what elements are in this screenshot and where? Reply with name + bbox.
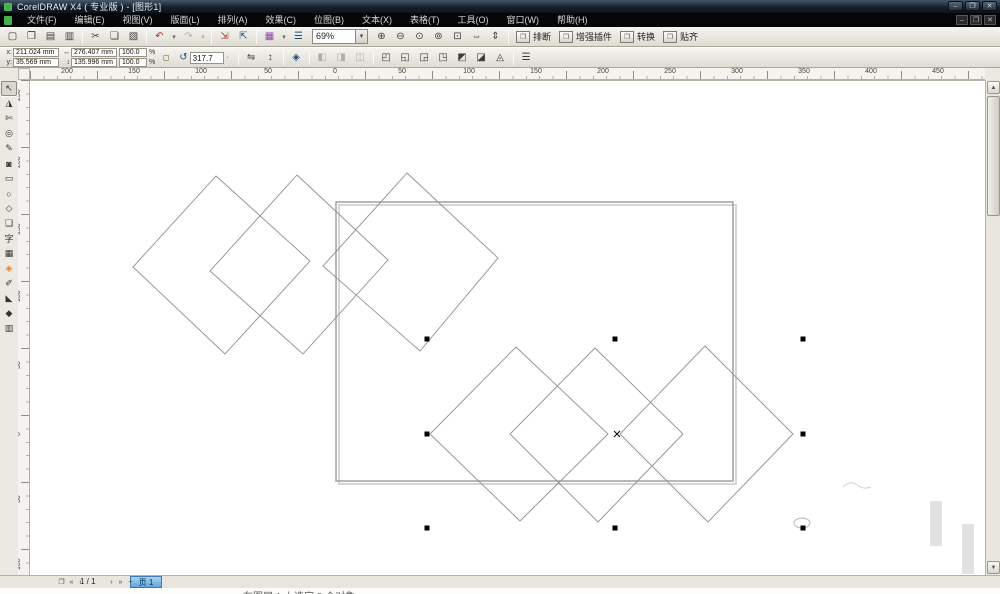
page-shadow[interactable]: [339, 205, 736, 484]
lock-ratio-icon[interactable]: ◻: [160, 51, 172, 65]
page-rectangle[interactable]: [336, 202, 733, 481]
selection-handle-4[interactable]: [425, 432, 430, 437]
separator: [283, 51, 284, 65]
rotation-spinner[interactable]: ◦: [224, 52, 232, 64]
window-control-1[interactable]: ❐: [965, 1, 980, 11]
copy-icon[interactable]: ❏: [106, 29, 123, 45]
selection-handle-6[interactable]: [425, 526, 430, 531]
diamond-shape-3[interactable]: [323, 173, 498, 351]
menu-item-10[interactable]: 窗口(W): [498, 13, 549, 27]
zoom-out-icon[interactable]: ⊖: [392, 29, 409, 45]
window-title: CorelDRAW X4 ( 专业版 ) - [图形1]: [17, 0, 161, 13]
status-text: 在图层 1 上选定 3 个对象: [243, 588, 355, 594]
menu-items: 文件(F)编辑(E)视图(V)版面(L)排列(A)效果(C)位图(B)文本(X)…: [18, 13, 597, 27]
group-icon[interactable]: ◱: [397, 50, 414, 66]
add-page-icon[interactable]: +: [125, 577, 136, 588]
pick-tool[interactable]: ↖: [1, 81, 17, 96]
percent-label: %: [149, 49, 155, 56]
launcher-dropdown-icon[interactable]: ▾: [280, 29, 288, 45]
freehand-tool[interactable]: ✎: [1, 141, 17, 156]
selection-handle-7[interactable]: [613, 526, 618, 531]
paste-icon[interactable]: ▧: [125, 29, 142, 45]
redo-dropdown-icon[interactable]: ▾: [199, 29, 207, 45]
doc-window-control-1[interactable]: ❐: [970, 15, 982, 25]
h-ruler-label: 350: [798, 68, 810, 75]
document-window-controls: –❐✕: [956, 15, 996, 25]
undo-icon[interactable]: ↶: [151, 29, 168, 45]
fill-tool[interactable]: ◆: [1, 306, 17, 321]
h-ruler-label: 50: [264, 68, 272, 75]
percent-label: %: [149, 59, 155, 66]
menu-item-9[interactable]: 工具(O): [449, 13, 498, 27]
snap-button-label: 贴齐: [680, 30, 698, 43]
convert-curves-icon[interactable]: ◬: [492, 50, 509, 66]
interactive-blend-tool[interactable]: ◈: [1, 261, 17, 276]
ungroup-icon[interactable]: ◲: [416, 50, 433, 66]
menu-item-5[interactable]: 效果(C): [257, 13, 306, 27]
diamond-shape-6[interactable]: [620, 346, 793, 522]
zoom-all-objects-icon[interactable]: ⊚: [430, 29, 447, 45]
app-launcher-icon[interactable]: ▦: [261, 29, 278, 45]
app-logo-icon: [4, 3, 12, 11]
outline-width-icon[interactable]: ☰: [518, 50, 535, 66]
interactive-fill-tool[interactable]: ▥: [1, 321, 17, 336]
h-ruler-label: 0: [333, 68, 337, 75]
h-ruler-label: 150: [530, 68, 542, 75]
standard-toolbar: ▢❒▤▥✂❏▧↶▾↷▾⇲⇱▦▾☰ 69% ▾ ⊕⊖⊙⊚⊡⇔⇕ ❐排断❐增强插件❐…: [0, 27, 1000, 47]
window-controls: –❐✕: [948, 1, 997, 11]
weld-icon[interactable]: ◧: [314, 50, 331, 66]
artwork: [30, 81, 985, 576]
ellipse-tool[interactable]: ○: [1, 186, 17, 201]
menu-item-2[interactable]: 视图(V): [114, 13, 162, 27]
text-tool[interactable]: 字: [1, 231, 17, 246]
order-icon[interactable]: ◪: [473, 50, 490, 66]
object-height-field[interactable]: 135.996 mm: [71, 58, 117, 67]
selection-handle-3[interactable]: [801, 337, 806, 342]
zoom-selected-icon[interactable]: ⊙: [411, 29, 428, 45]
menu-item-3[interactable]: 版面(L): [162, 13, 209, 27]
doc-window-control-2[interactable]: ✕: [984, 15, 996, 25]
plugin-cut-button-icon: ❐: [516, 31, 530, 43]
mirror-vertical-icon[interactable]: ↕: [262, 50, 279, 66]
ruler-origin-corner[interactable]: [18, 68, 30, 80]
plugin-convert-button-label: 转换: [637, 30, 655, 43]
cut-icon[interactable]: ✂: [87, 29, 104, 45]
separator: [373, 51, 374, 65]
h-ruler-label: 300: [731, 68, 743, 75]
window-control-2[interactable]: ✕: [982, 1, 997, 11]
selection-center-marker[interactable]: [614, 431, 620, 437]
new-icon[interactable]: ▢: [4, 29, 21, 45]
rotation-icon: ↺: [179, 52, 187, 63]
zoom-tool[interactable]: ◎: [1, 126, 17, 141]
object-width-field[interactable]: 276.407 mm: [71, 48, 117, 57]
width-icon: ↔: [61, 49, 70, 56]
separator: [508, 30, 509, 44]
stray-curve[interactable]: [843, 483, 871, 488]
property-bar: x: 211.024 mm y: 35.569 mm ↔ 276.407 mm …: [0, 47, 1000, 68]
trim-icon[interactable]: ◨: [333, 50, 350, 66]
zoom-level-dropdown-icon[interactable]: ▾: [356, 29, 368, 44]
snap-button[interactable]: ❐贴齐: [663, 30, 698, 43]
coreldraw-window: CorelDRAW X4 ( 专业版 ) - [图形1] –❐✕ 文件(F)编辑…: [0, 0, 1000, 594]
rotation-angle-field[interactable]: 317.7: [190, 52, 224, 64]
polygon-tool[interactable]: ◇: [1, 201, 17, 216]
h-ruler-label: 250: [664, 68, 676, 75]
plugin-enhance-button[interactable]: ❐增强插件: [559, 30, 612, 43]
welcome-screen-icon[interactable]: ☰: [290, 29, 307, 45]
selection-handle-5[interactable]: [801, 432, 806, 437]
selection-handle-1[interactable]: [425, 337, 430, 342]
zoom-width-icon[interactable]: ⇔: [468, 29, 485, 45]
plugin-cut-button[interactable]: ❐排断: [516, 30, 551, 43]
combine-icon[interactable]: ◰: [378, 50, 395, 66]
y-position-field[interactable]: 35.569 mm: [13, 58, 59, 67]
x-position-field[interactable]: 211.024 mm: [13, 48, 59, 57]
drawing-canvas[interactable]: [30, 80, 985, 575]
separator: [82, 30, 83, 44]
h-ruler-label: 200: [61, 68, 73, 75]
gray-bar-artifact-2[interactable]: [962, 524, 974, 574]
eyedropper-tool[interactable]: ✐: [1, 276, 17, 291]
status-bar: 在图层 1 上选定 3 个对象: [0, 588, 1000, 594]
selection-handle-2[interactable]: [613, 337, 618, 342]
outline-pen-tool[interactable]: ◣: [1, 291, 17, 306]
zoom-height-icon[interactable]: ⇕: [487, 29, 504, 45]
plugin-convert-button[interactable]: ❐转换: [620, 30, 655, 43]
doc-window-control-0[interactable]: –: [956, 15, 968, 25]
save-icon[interactable]: ▤: [42, 29, 59, 45]
plugin-cut-button-label: 排断: [533, 30, 551, 43]
import-icon[interactable]: ⇲: [216, 29, 233, 45]
zoom-page-icon[interactable]: ⊡: [449, 29, 466, 45]
apply-transform-icon[interactable]: ◈: [288, 50, 305, 66]
y-label: y:: [3, 59, 12, 66]
open-icon[interactable]: ❒: [23, 29, 40, 45]
horizontal-ruler[interactable]: 20015010050050100150200250300350400450: [30, 68, 985, 80]
mirror-horizontal-icon[interactable]: ⇋: [243, 50, 260, 66]
redo-icon[interactable]: ↷: [180, 29, 197, 45]
diamond-shape-5[interactable]: [510, 348, 683, 522]
toolbox: ↖◮✄◎✎◙▭○◇❑字▦◈✐◣◆▥: [0, 80, 18, 575]
plugin-convert-button-icon: ❐: [620, 31, 634, 43]
print-icon[interactable]: ▥: [61, 29, 78, 45]
basic-shapes-tool[interactable]: ❑: [1, 216, 17, 231]
crop-tool[interactable]: ✄: [1, 111, 17, 126]
h-ruler-label: 450: [932, 68, 944, 75]
separator: [238, 51, 239, 65]
diamond-shape-4[interactable]: [430, 347, 608, 521]
h-ruler-label: 200: [597, 68, 609, 75]
zoom-level-value[interactable]: 69%: [312, 29, 356, 44]
document-icon: [4, 16, 12, 25]
separator: [513, 51, 514, 65]
h-ruler-label: 100: [463, 68, 475, 75]
undo-dropdown-icon[interactable]: ▾: [170, 29, 178, 45]
window-control-0[interactable]: –: [948, 1, 963, 11]
h-ruler-label: 400: [865, 68, 877, 75]
scale-y-field[interactable]: 100.0: [119, 58, 147, 67]
menu-item-0[interactable]: 文件(F): [18, 13, 66, 27]
h-ruler-label: 50: [398, 68, 406, 75]
smart-fill-tool[interactable]: ◙: [1, 156, 17, 171]
zoom-level-combo[interactable]: 69% ▾: [312, 29, 368, 44]
separator: [256, 30, 257, 44]
menu-item-11[interactable]: 帮助(H): [548, 13, 597, 27]
scroll-up-icon[interactable]: ▲: [987, 81, 1000, 94]
diamond-shape-1[interactable]: [133, 176, 310, 354]
scroll-down-icon[interactable]: ▼: [987, 561, 1000, 574]
menu-item-8[interactable]: 表格(T): [401, 13, 449, 27]
menu-item-1[interactable]: 编辑(E): [66, 13, 114, 27]
plugin-enhance-button-icon: ❐: [559, 31, 573, 43]
title-bar: CorelDRAW X4 ( 专业版 ) - [图形1] –❐✕: [0, 0, 1000, 13]
x-label: x:: [3, 49, 12, 56]
vertical-scrollbar[interactable]: ▲ ▼: [985, 80, 1000, 575]
gray-bar-artifact-1[interactable]: [930, 501, 942, 546]
h-ruler-label: 150: [128, 68, 140, 75]
intersect-icon[interactable]: ◫: [352, 50, 369, 66]
snap-button-icon: ❐: [663, 31, 677, 43]
page-navigation-bar: 1 / 1 页 1 ◀ ▶ ❐«‹›»+: [0, 575, 1000, 588]
shape-tool[interactable]: ◮: [1, 96, 17, 111]
menu-item-6[interactable]: 位图(B): [305, 13, 353, 27]
vertical-ruler[interactable]: 25020015010050050100: [18, 80, 30, 575]
menu-bar: 文件(F)编辑(E)视图(V)版面(L)排列(A)效果(C)位图(B)文本(X)…: [0, 13, 1000, 27]
selection-handle-8[interactable]: [801, 526, 806, 531]
separator: [146, 30, 147, 44]
zoom-in-icon[interactable]: ⊕: [373, 29, 390, 45]
plugin-enhance-button-label: 增强插件: [576, 30, 612, 43]
separator: [309, 51, 310, 65]
export-icon[interactable]: ⇱: [235, 29, 252, 45]
menu-item-4[interactable]: 排列(A): [209, 13, 257, 27]
to-back-icon[interactable]: ◩: [454, 50, 471, 66]
h-ruler-label: 100: [195, 68, 207, 75]
vertical-scroll-thumb[interactable]: [987, 96, 1000, 216]
height-icon: ↕: [61, 59, 70, 66]
table-tool[interactable]: ▦: [1, 246, 17, 261]
scale-x-field[interactable]: 100.0: [119, 48, 147, 57]
prev-page-icon[interactable]: ‹: [75, 577, 86, 588]
to-front-icon[interactable]: ◳: [435, 50, 452, 66]
separator: [211, 30, 212, 44]
rectangle-tool[interactable]: ▭: [1, 171, 17, 186]
menu-item-7[interactable]: 文本(X): [353, 13, 401, 27]
